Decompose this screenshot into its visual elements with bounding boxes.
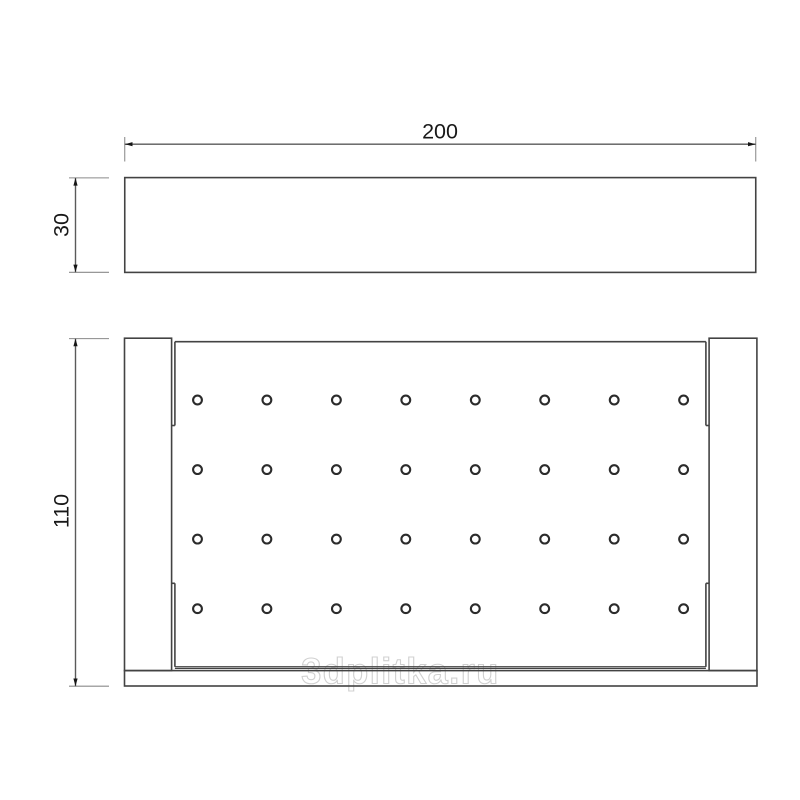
svg-text:200: 200 [422, 119, 458, 143]
svg-text:30: 30 [49, 213, 73, 237]
svg-text:110: 110 [49, 494, 73, 528]
